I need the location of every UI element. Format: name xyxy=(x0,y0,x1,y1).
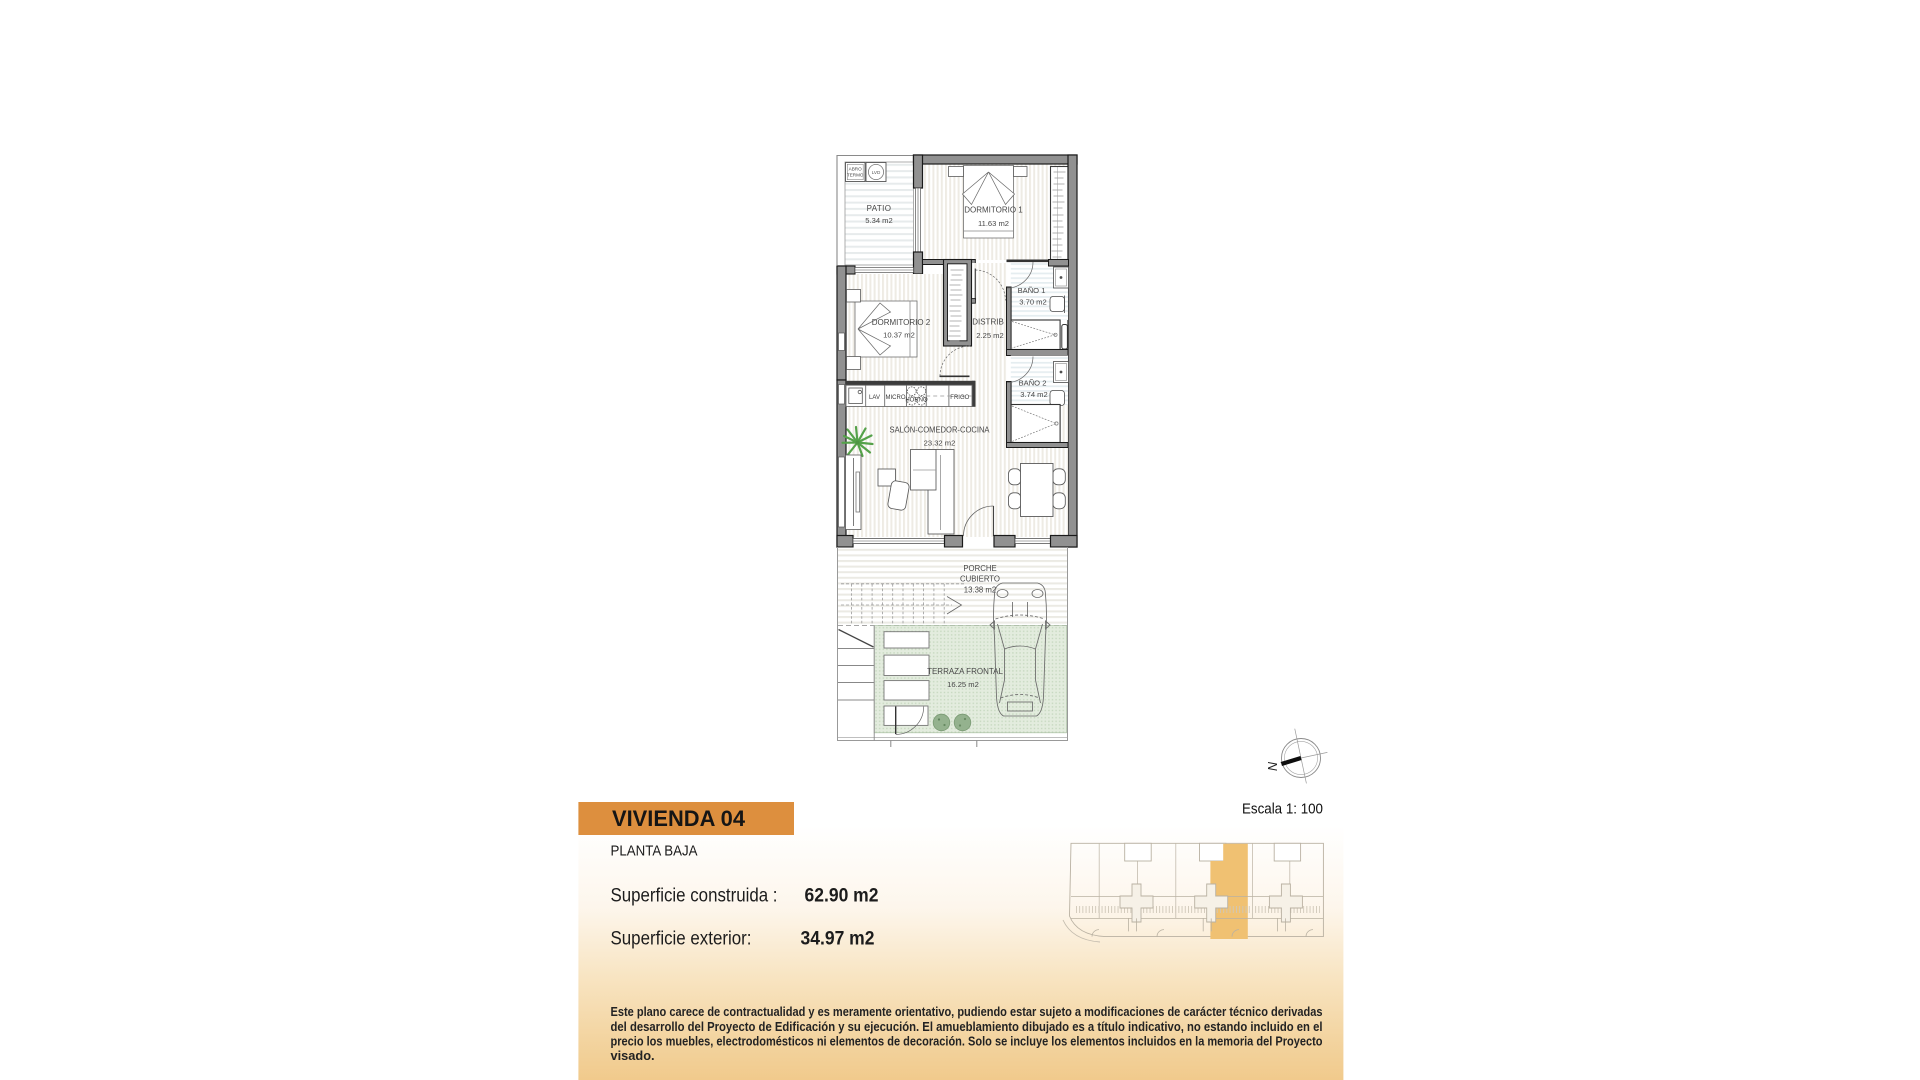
svg-text:BAÑO 1: BAÑO 1 xyxy=(1018,286,1046,295)
svg-text:DORMITORIO 1: DORMITORIO 1 xyxy=(964,206,1023,215)
svg-text:HORNO: HORNO xyxy=(905,398,928,404)
svg-text:N: N xyxy=(1266,761,1280,771)
svg-text:3.70 m2: 3.70 m2 xyxy=(1019,298,1046,307)
svg-text:23.32 m2: 23.32 m2 xyxy=(924,439,956,448)
svg-text:MICRO: MICRO xyxy=(886,395,906,401)
svg-text:Superficie construida :: Superficie construida : xyxy=(611,886,778,907)
svg-text:SALÓN-COMEDOR-COCINA: SALÓN-COMEDOR-COCINA xyxy=(890,426,991,435)
svg-text:PORCHE: PORCHE xyxy=(963,564,996,573)
svg-text:Superficie exterior:: Superficie exterior: xyxy=(611,929,752,950)
svg-text:VIVIENDA 04: VIVIENDA 04 xyxy=(612,806,745,831)
svg-text:5.34 m2: 5.34 m2 xyxy=(865,216,892,225)
svg-text:del desarrollo del Proyecto de: del desarrollo del Proyecto de Edificaci… xyxy=(611,1019,1323,1034)
svg-text:LAV: LAV xyxy=(869,395,880,401)
svg-text:precio los muebles, electrodom: precio los muebles, electrodomésticos ni… xyxy=(611,1034,1323,1049)
svg-text:3.74 m2: 3.74 m2 xyxy=(1020,390,1047,399)
svg-text:16.25 m2: 16.25 m2 xyxy=(947,680,979,689)
svg-text:Este plano carece de contractu: Este plano carece de contractualidad y e… xyxy=(611,1004,1323,1019)
svg-text:LVD: LVD xyxy=(872,170,881,175)
svg-text:34.97 m2: 34.97 m2 xyxy=(801,929,875,950)
svg-text:FRIGO: FRIGO xyxy=(950,395,969,401)
svg-text:PATIO: PATIO xyxy=(867,204,892,213)
svg-text:TERMO: TERMO xyxy=(847,173,864,178)
svg-text:11.63 m2: 11.63 m2 xyxy=(978,219,1009,228)
svg-text:62.90 m2: 62.90 m2 xyxy=(805,886,879,907)
svg-text:visado.: visado. xyxy=(611,1048,655,1063)
svg-text:Escala 1: 100: Escala 1: 100 xyxy=(1242,801,1323,818)
svg-text:10.37 m2: 10.37 m2 xyxy=(883,331,915,340)
svg-text:13.38 m2: 13.38 m2 xyxy=(964,586,997,595)
svg-text:PLANTA BAJA: PLANTA BAJA xyxy=(611,843,698,860)
svg-text:DISTRIB: DISTRIB xyxy=(972,318,1004,327)
svg-text:2.25 m2: 2.25 m2 xyxy=(976,331,1003,340)
svg-text:DORMITORIO 2: DORMITORIO 2 xyxy=(872,318,931,327)
svg-text:ABRO: ABRO xyxy=(849,167,862,172)
svg-text:TERRAZA FRONTAL: TERRAZA FRONTAL xyxy=(927,667,1003,676)
svg-text:CUBIERTO: CUBIERTO xyxy=(960,575,1000,584)
svg-text:BAÑO 2: BAÑO 2 xyxy=(1019,379,1047,388)
